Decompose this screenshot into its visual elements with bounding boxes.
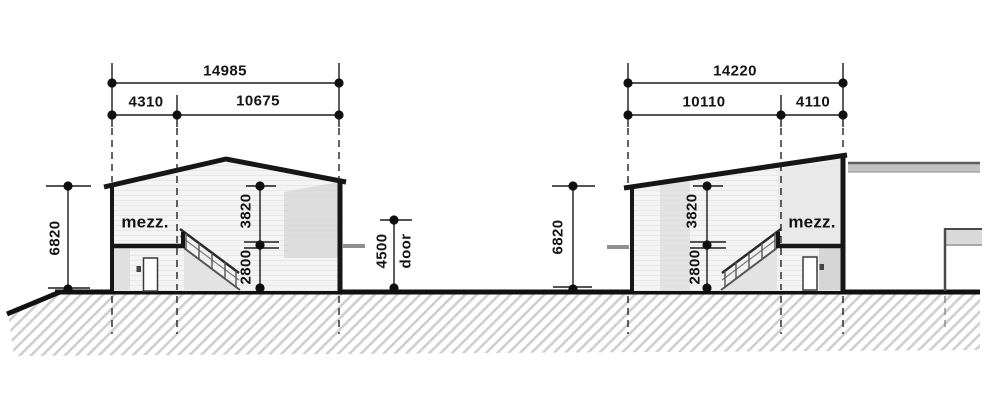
right-door xyxy=(803,257,817,290)
right-mezz-label: mezz. xyxy=(788,214,835,231)
dim-left-total-width: 14985 xyxy=(203,64,247,79)
dim-left-main-width: 10675 xyxy=(236,94,280,109)
dim-left-height-lower: 2800 xyxy=(239,250,254,285)
dim-right-total-width: 14220 xyxy=(713,64,757,79)
dim-left-mezz-width: 4310 xyxy=(129,95,164,110)
right-canopy-tick xyxy=(607,245,629,249)
dim-right-mezz-width: 4110 xyxy=(796,95,830,110)
left-door-mark xyxy=(137,266,142,272)
left-door xyxy=(144,258,158,291)
dim-door-height: 4500 xyxy=(375,234,390,269)
dim-left-height-upper: 3820 xyxy=(239,194,254,229)
left-canopy-tick xyxy=(343,244,365,248)
elevation-drawing: 14985 4310 10675 14220 10110 4110 6820 3… xyxy=(0,0,1000,408)
left-mezz-label: mezz. xyxy=(121,214,168,231)
ground-section xyxy=(7,292,980,356)
dim-right-height-total: 6820 xyxy=(551,220,566,255)
dim-right-height-upper: 3820 xyxy=(685,194,700,229)
dim-left-height-total: 6820 xyxy=(48,221,63,256)
right-door-mark xyxy=(820,264,825,270)
dim-right-main-width: 10110 xyxy=(683,95,726,110)
dim-right-height-lower: 2800 xyxy=(688,250,703,285)
adjacent-structure xyxy=(848,163,982,291)
dim-door-label: door xyxy=(399,234,414,269)
drawing-linework xyxy=(0,0,1000,408)
